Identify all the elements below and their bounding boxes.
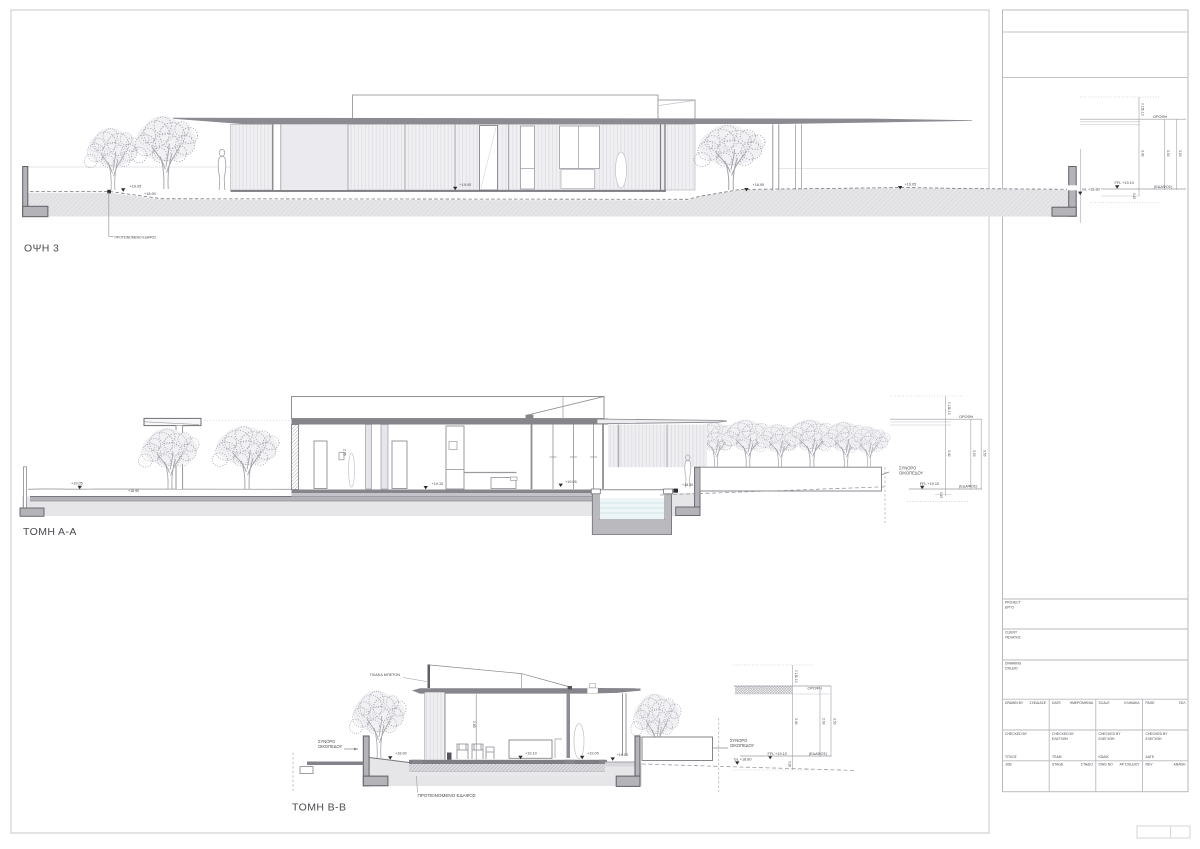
- svg-text:3.50: 3.50: [983, 450, 987, 457]
- svg-text:DWG NO: DWG NO: [1099, 763, 1114, 767]
- svg-text:ΟΙΚΟΠΕΔΟΥ: ΟΙΚΟΠΕΔΟΥ: [318, 744, 342, 749]
- svg-text:GL +18.80: GL +18.80: [1082, 188, 1100, 192]
- svg-text:3.50: 3.50: [1178, 150, 1182, 157]
- svg-text:+18.90: +18.90: [128, 489, 139, 493]
- svg-text:ΠΡΟΤΕΙΝΟΜΕΝΟ ΕΔΑΦΟΣ: ΠΡΟΤΕΙΝΟΜΕΝΟ ΕΔΑΦΟΣ: [418, 793, 476, 798]
- svg-text:2.90: 2.90: [821, 718, 825, 725]
- svg-text:ΟΙΚΟΠΕΔΟΥ: ΟΙΚΟΠΕΔΟΥ: [730, 743, 754, 748]
- svg-text:CHECKED BY: CHECKED BY: [1005, 732, 1028, 736]
- svg-text:ΤΙΤΛΟΣ: ΤΙΤΛΟΣ: [1005, 755, 1017, 759]
- svg-text:ΟΙΚΟΠΕΔΟΥ: ΟΙΚΟΠΕΔΟΥ: [899, 471, 923, 476]
- svg-text:1.10: 1.10: [947, 408, 951, 415]
- svg-text:ΣΤΑΔΙΟ: ΣΤΑΔΙΟ: [1081, 763, 1093, 767]
- svg-text:CHECKED BY: CHECKED BY: [1146, 732, 1169, 736]
- svg-text:3.50: 3.50: [832, 718, 836, 725]
- svg-text:3.40: 3.40: [1141, 150, 1145, 157]
- svg-text:CHECKED BY: CHECKED BY: [1052, 732, 1075, 736]
- svg-text:ΠΕΛΑΤΗΣ: ΠΕΛΑΤΗΣ: [1005, 636, 1021, 640]
- svg-text:PROJECT: PROJECT: [1005, 601, 1021, 605]
- svg-text:+19.00: +19.00: [617, 753, 629, 757]
- svg-text:1.10: 1.10: [794, 676, 798, 683]
- svg-text:STAGE: STAGE: [1052, 763, 1064, 767]
- svg-text:+19.05: +19.05: [905, 182, 917, 186]
- svg-text:+19.10: +19.10: [432, 482, 444, 486]
- svg-text:(ΕΔΑΦΟΣ): (ΕΔΑΦΟΣ): [959, 485, 978, 489]
- svg-text:TOMH B-B: TOMH B-B: [292, 802, 346, 814]
- svg-text:2.95: 2.95: [343, 449, 347, 456]
- svg-text:1.10: 1.10: [1141, 109, 1145, 116]
- svg-text:ΟΡΟΦΗ: ΟΡΟΦΗ: [959, 415, 973, 419]
- svg-text:TOMH A-A: TOMH A-A: [23, 526, 77, 538]
- svg-text:3.40: 3.40: [794, 718, 798, 725]
- svg-text:(ΕΔΑΦΟΣ): (ΕΔΑΦΟΣ): [1154, 185, 1173, 189]
- svg-text:SCALE: SCALE: [1099, 701, 1111, 705]
- svg-text:DATE: DATE: [1052, 701, 1062, 705]
- svg-text:0.30: 0.30: [788, 761, 792, 767]
- svg-text:ΣΕΛ: ΣΕΛ: [1179, 701, 1186, 705]
- svg-text:+18.50: +18.50: [682, 483, 693, 487]
- svg-text:DRAWN BY: DRAWN BY: [1005, 701, 1024, 705]
- svg-text:3.50: 3.50: [1166, 150, 1170, 157]
- svg-text:+18.95: +18.95: [753, 183, 765, 187]
- svg-text:ΕΛΕΓΧΘΗ: ΕΛΕΓΧΘΗ: [1146, 737, 1163, 741]
- svg-text:ΠΡΟΤΕΙΝΟΜΕΝΟ ΕΔΑΦΟΣ: ΠΡΟΤΕΙΝΟΜΕΝΟ ΕΔΑΦΟΣ: [115, 236, 157, 240]
- svg-text:GL +18.80: GL +18.80: [734, 757, 752, 761]
- svg-text:(ΕΔΑΦΟΣ): (ΕΔΑΦΟΣ): [809, 752, 828, 756]
- svg-text:FFL +19.10: FFL +19.10: [920, 482, 939, 486]
- svg-text:FFL +19.10: FFL +19.10: [768, 752, 787, 756]
- svg-text:ΚΛΙΜΑΚΑ: ΚΛΙΜΑΚΑ: [1124, 701, 1140, 705]
- svg-text:3.50: 3.50: [972, 450, 976, 457]
- svg-text:CHECKED BY: CHECKED BY: [1099, 732, 1122, 736]
- svg-text:+18.90: +18.90: [144, 192, 156, 196]
- svg-text:PAGE: PAGE: [1146, 701, 1156, 705]
- svg-text:ΣΧΕΔΙΑΣΕ: ΣΧΕΔΙΑΣΕ: [1030, 701, 1047, 705]
- svg-text:ΑΝΑΘΗ: ΑΝΑΘΗ: [1174, 763, 1187, 767]
- svg-text:ΟΨΗ 3: ΟΨΗ 3: [24, 243, 59, 255]
- svg-text:+19.05: +19.05: [71, 482, 83, 486]
- svg-text:DRAWING: DRAWING: [1005, 662, 1022, 666]
- svg-text:ΕΛΕΓΧΘΗ: ΕΛΕΓΧΘΗ: [1099, 737, 1116, 741]
- svg-text:+18.90: +18.90: [395, 752, 407, 756]
- svg-text:ΕΛΕΓΧΘΗ: ΕΛΕΓΧΘΗ: [1052, 737, 1069, 741]
- svg-text:3.40: 3.40: [947, 450, 951, 457]
- svg-text:ΟΡΟΦΗ: ΟΡΟΦΗ: [1153, 115, 1167, 119]
- svg-text:0.45: 0.45: [939, 492, 943, 498]
- svg-text:+19.05: +19.05: [565, 480, 577, 484]
- svg-text:REV: REV: [1146, 763, 1154, 767]
- svg-text:CLIENT: CLIENT: [1005, 631, 1017, 635]
- svg-text:ΔΑΤΕ: ΔΑΤΕ: [1146, 755, 1155, 759]
- svg-text:0.45: 0.45: [1132, 193, 1136, 199]
- svg-text:+19.05: +19.05: [587, 751, 599, 755]
- svg-text:+19.00: +19.00: [460, 183, 472, 187]
- svg-text:+19.10: +19.10: [525, 751, 537, 755]
- svg-text:ΠΛΑΚΑ ΜΠΕΤΟΝ: ΠΛΑΚΑ ΜΠΕΤΟΝ: [370, 673, 400, 677]
- svg-text:ΗΜΕΡΟΜΗΝΙΑ: ΗΜΕΡΟΜΗΝΙΑ: [1070, 701, 1094, 705]
- svg-text:ΣΧΕΔΙΟ: ΣΧΕΔΙΟ: [1005, 667, 1018, 671]
- svg-text:ΤΕΑΜ: ΤΕΑΜ: [1052, 755, 1062, 759]
- svg-text:ΕΡΓΟ: ΕΡΓΟ: [1005, 606, 1014, 610]
- svg-text:+19.05: +19.05: [130, 184, 142, 188]
- svg-text:ΚΩΔΙΚ: ΚΩΔΙΚ: [1099, 755, 1110, 759]
- svg-text:2.85: 2.85: [472, 721, 476, 728]
- svg-text:JOB: JOB: [1005, 763, 1012, 767]
- svg-text:FFL +19.10: FFL +19.10: [1115, 181, 1134, 185]
- svg-text:ΑΡ ΣΧΕΔΙΟΥ: ΑΡ ΣΧΕΔΙΟΥ: [1119, 763, 1140, 767]
